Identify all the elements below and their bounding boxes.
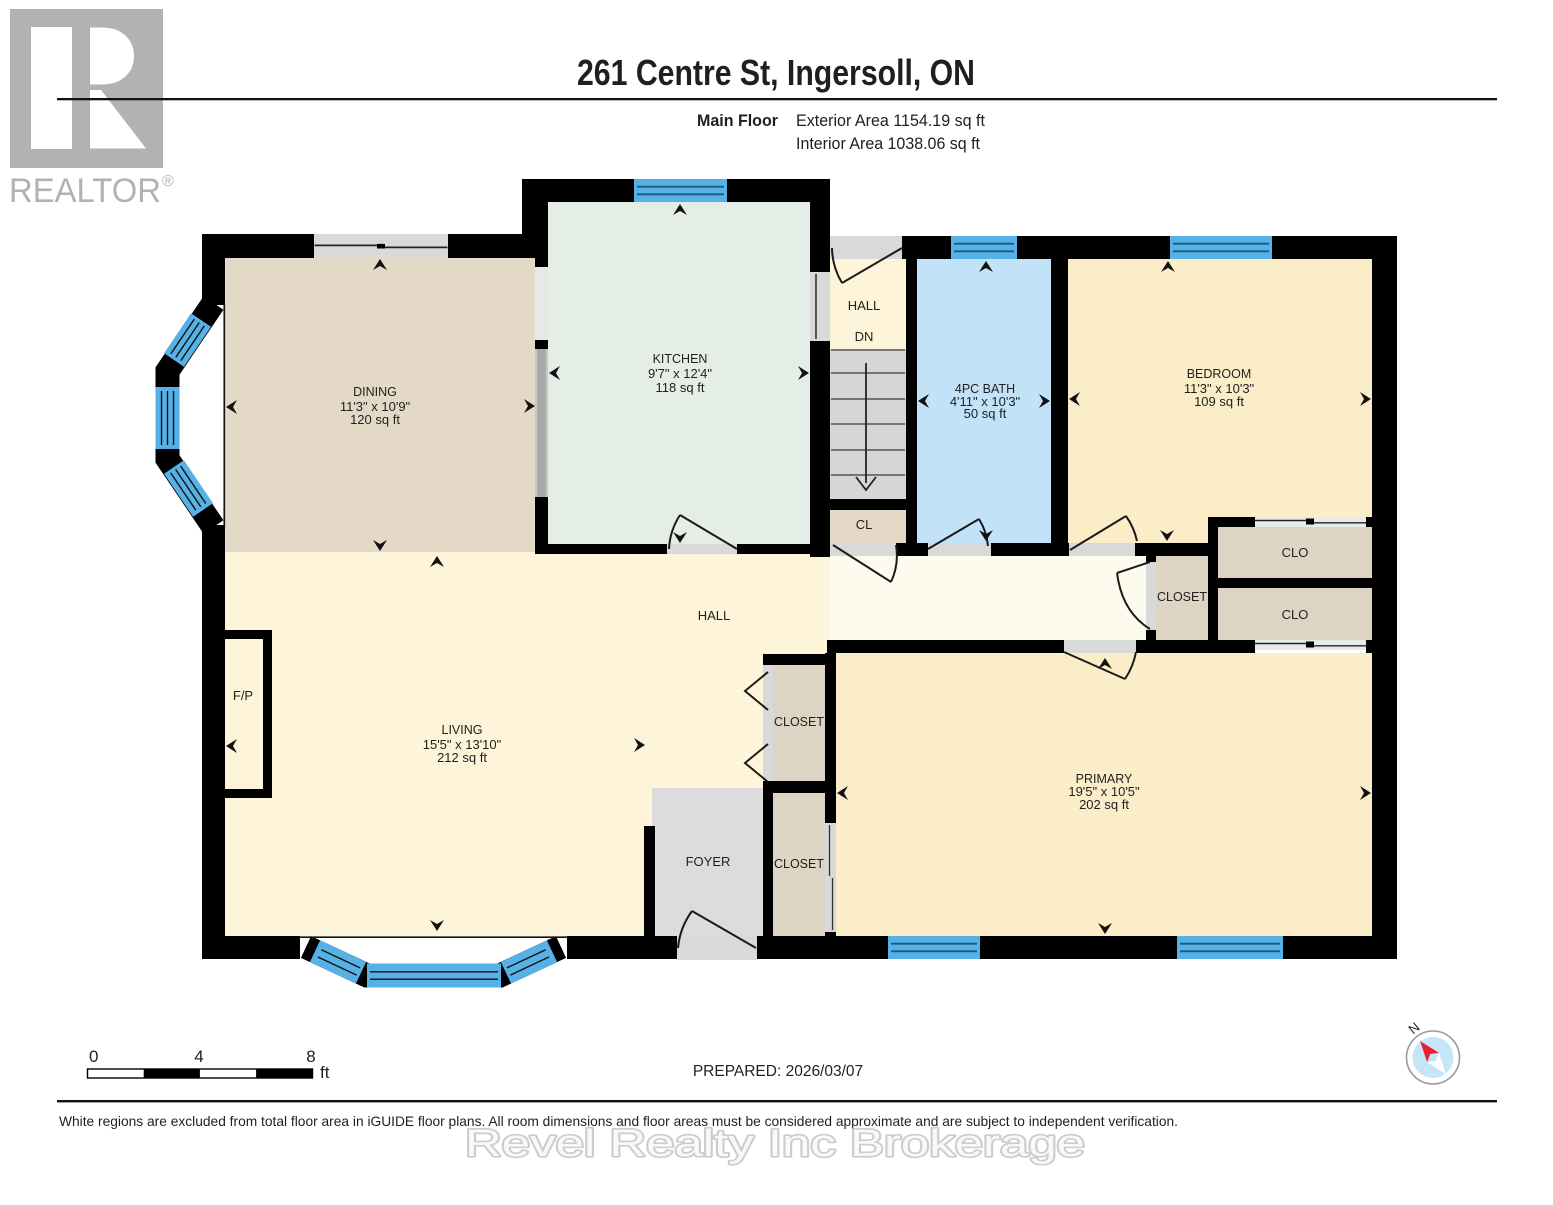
svg-text:CLO: CLO bbox=[1282, 545, 1309, 560]
svg-text:8: 8 bbox=[306, 1047, 315, 1066]
svg-text:LIVING: LIVING bbox=[442, 723, 483, 737]
svg-text:CL: CL bbox=[856, 517, 873, 532]
svg-text:Revel Realty Inc Brokerage: Revel Realty Inc Brokerage bbox=[465, 1123, 1085, 1165]
svg-text:DINING: DINING bbox=[353, 385, 397, 399]
svg-text:9'7" x 12'4": 9'7" x 12'4" bbox=[648, 366, 712, 381]
svg-text:®: ® bbox=[162, 173, 174, 190]
svg-text:CLOSET: CLOSET bbox=[774, 857, 824, 871]
svg-text:CLOSET: CLOSET bbox=[1157, 590, 1207, 604]
svg-text:Exterior Area 1154.19 sq ft: Exterior Area 1154.19 sq ft bbox=[796, 112, 985, 130]
svg-text:202 sq ft: 202 sq ft bbox=[1079, 797, 1129, 812]
svg-text:4: 4 bbox=[194, 1047, 203, 1066]
svg-text:CLOSET: CLOSET bbox=[774, 715, 824, 729]
svg-text:109 sq ft: 109 sq ft bbox=[1194, 394, 1244, 409]
svg-text:Interior Area 1038.06 sq ft: Interior Area 1038.06 sq ft bbox=[796, 135, 980, 153]
svg-text:F/P: F/P bbox=[233, 688, 253, 703]
svg-text:212 sq ft: 212 sq ft bbox=[437, 750, 487, 765]
svg-text:REALTOR: REALTOR bbox=[9, 172, 161, 210]
svg-text:261 Centre St, Ingersoll, ON: 261 Centre St, Ingersoll, ON bbox=[577, 52, 975, 93]
svg-text:120 sq ft: 120 sq ft bbox=[350, 412, 400, 427]
svg-text:CLO: CLO bbox=[1282, 607, 1309, 622]
svg-text:PREPARED: 2026/03/07: PREPARED: 2026/03/07 bbox=[693, 1063, 863, 1080]
svg-text:118 sq ft: 118 sq ft bbox=[656, 380, 705, 395]
svg-text:KITCHEN: KITCHEN bbox=[653, 352, 708, 366]
svg-text:Main Floor: Main Floor bbox=[697, 112, 779, 130]
svg-text:FOYER: FOYER bbox=[686, 854, 731, 869]
svg-text:BEDROOM: BEDROOM bbox=[1187, 367, 1252, 381]
svg-text:0: 0 bbox=[89, 1047, 98, 1066]
svg-text:DN: DN bbox=[855, 329, 874, 344]
svg-text:HALL: HALL bbox=[698, 608, 731, 623]
svg-text:HALL: HALL bbox=[848, 298, 881, 313]
svg-text:50 sq ft: 50 sq ft bbox=[964, 406, 1007, 421]
svg-text:ft: ft bbox=[320, 1063, 330, 1082]
